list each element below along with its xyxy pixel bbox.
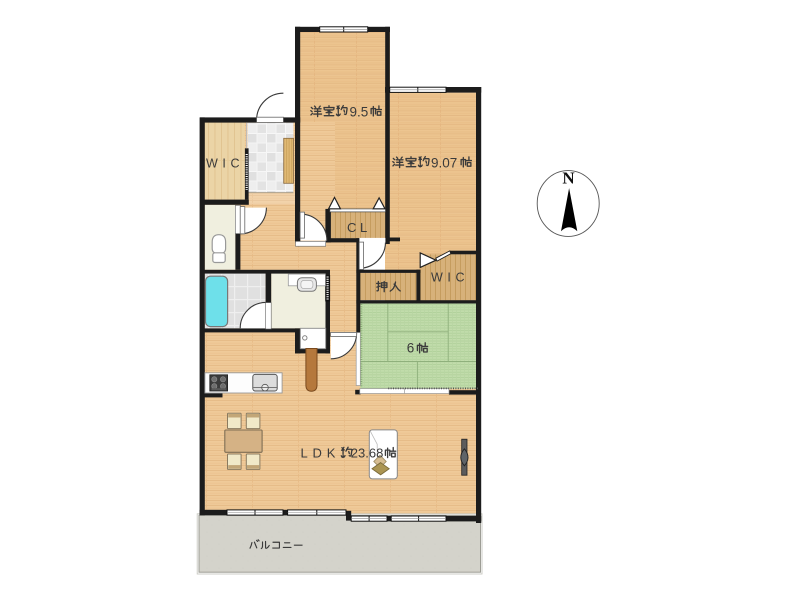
svg-text:23.68: 23.68 <box>351 445 384 460</box>
svg-text:9.5: 9.5 <box>350 105 369 120</box>
svg-text:6: 6 <box>407 341 415 356</box>
svg-text:WIC: WIC <box>431 271 469 285</box>
svg-text:LDK: LDK <box>301 445 341 460</box>
svg-text:CL: CL <box>347 220 371 235</box>
svg-text:N: N <box>562 169 575 188</box>
svg-text:9.07: 9.07 <box>431 156 457 171</box>
svg-text:WIC: WIC <box>206 156 244 170</box>
